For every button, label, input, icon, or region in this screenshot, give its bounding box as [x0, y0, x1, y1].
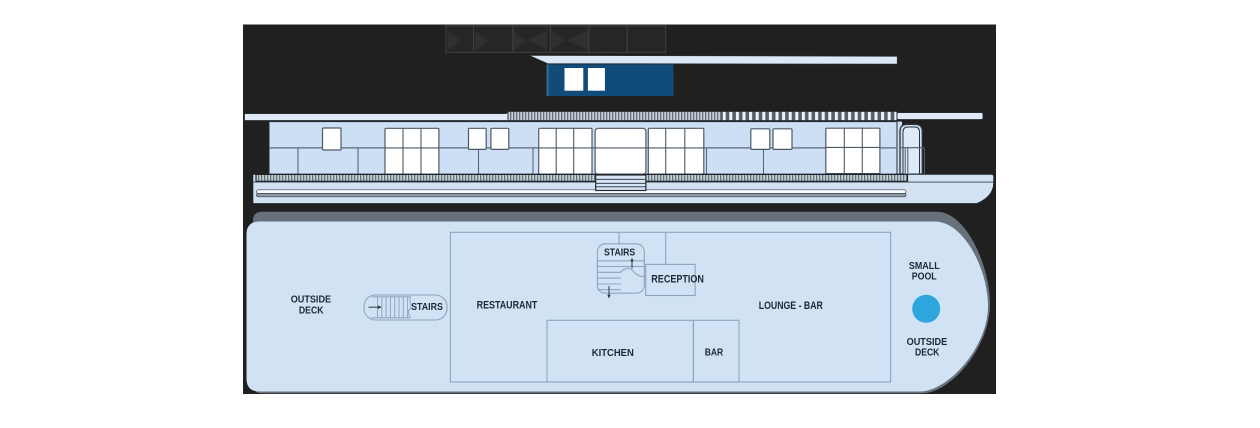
- svg-text:RECEPTION: RECEPTION: [651, 273, 704, 285]
- svg-text:DECK: DECK: [299, 306, 324, 317]
- svg-text:POOL: POOL: [912, 272, 937, 283]
- svg-text:OUTSIDE: OUTSIDE: [907, 337, 948, 348]
- svg-text:BAR: BAR: [705, 348, 724, 359]
- svg-text:OUTSIDE: OUTSIDE: [291, 294, 332, 305]
- svg-text:SMALL: SMALL: [909, 261, 940, 272]
- svg-text:LOUNGE - BAR: LOUNGE - BAR: [759, 300, 823, 312]
- svg-text:KITCHEN: KITCHEN: [592, 348, 634, 359]
- svg-text:RESTAURANT: RESTAURANT: [477, 299, 538, 311]
- svg-text:STAIRS: STAIRS: [604, 248, 636, 259]
- svg-text:DECK: DECK: [915, 348, 939, 359]
- svg-text:STAIRS: STAIRS: [411, 302, 443, 313]
